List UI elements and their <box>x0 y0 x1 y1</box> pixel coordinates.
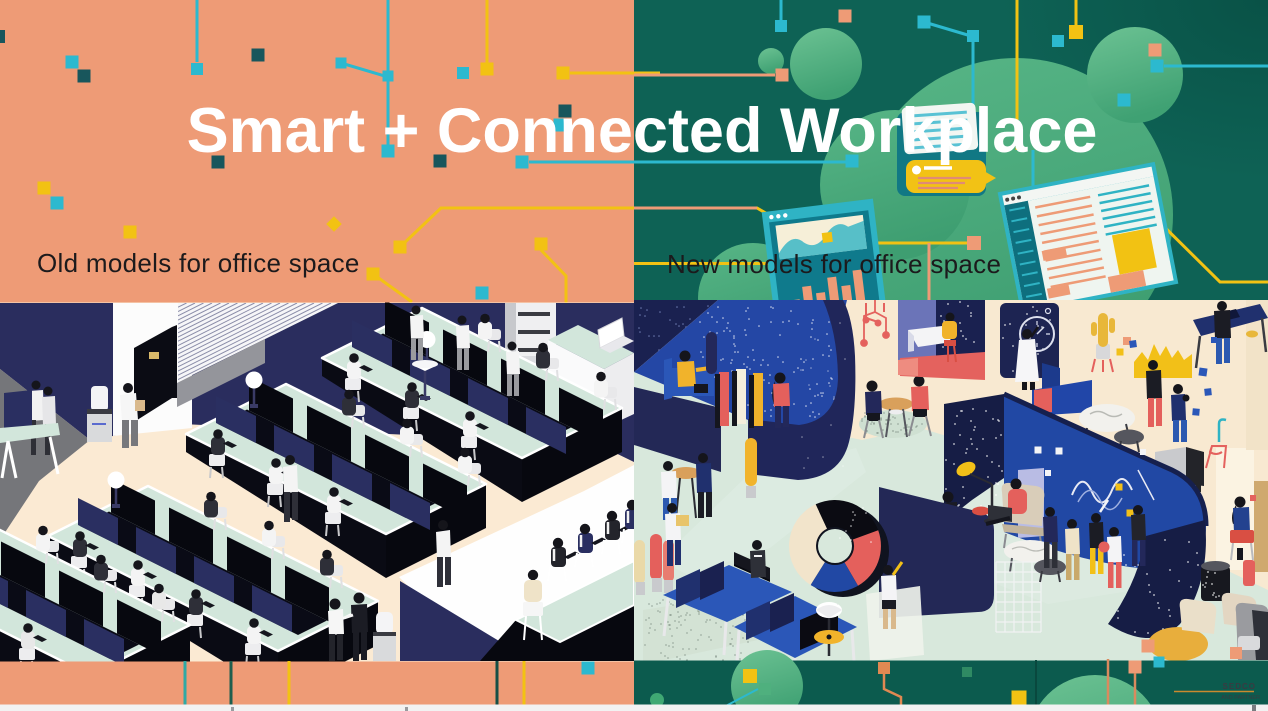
svg-text:Old models for office space: Old models for office space <box>37 248 360 278</box>
svg-text:New models for office space: New models for office space <box>667 249 1001 279</box>
svg-text:AND PARTNER: AND PARTNER <box>1221 695 1260 701</box>
svg-text:Smart + Connected Workplace: Smart + Connected Workplace <box>187 96 1098 166</box>
svg-text:SEDCO: SEDCO <box>1223 682 1256 691</box>
